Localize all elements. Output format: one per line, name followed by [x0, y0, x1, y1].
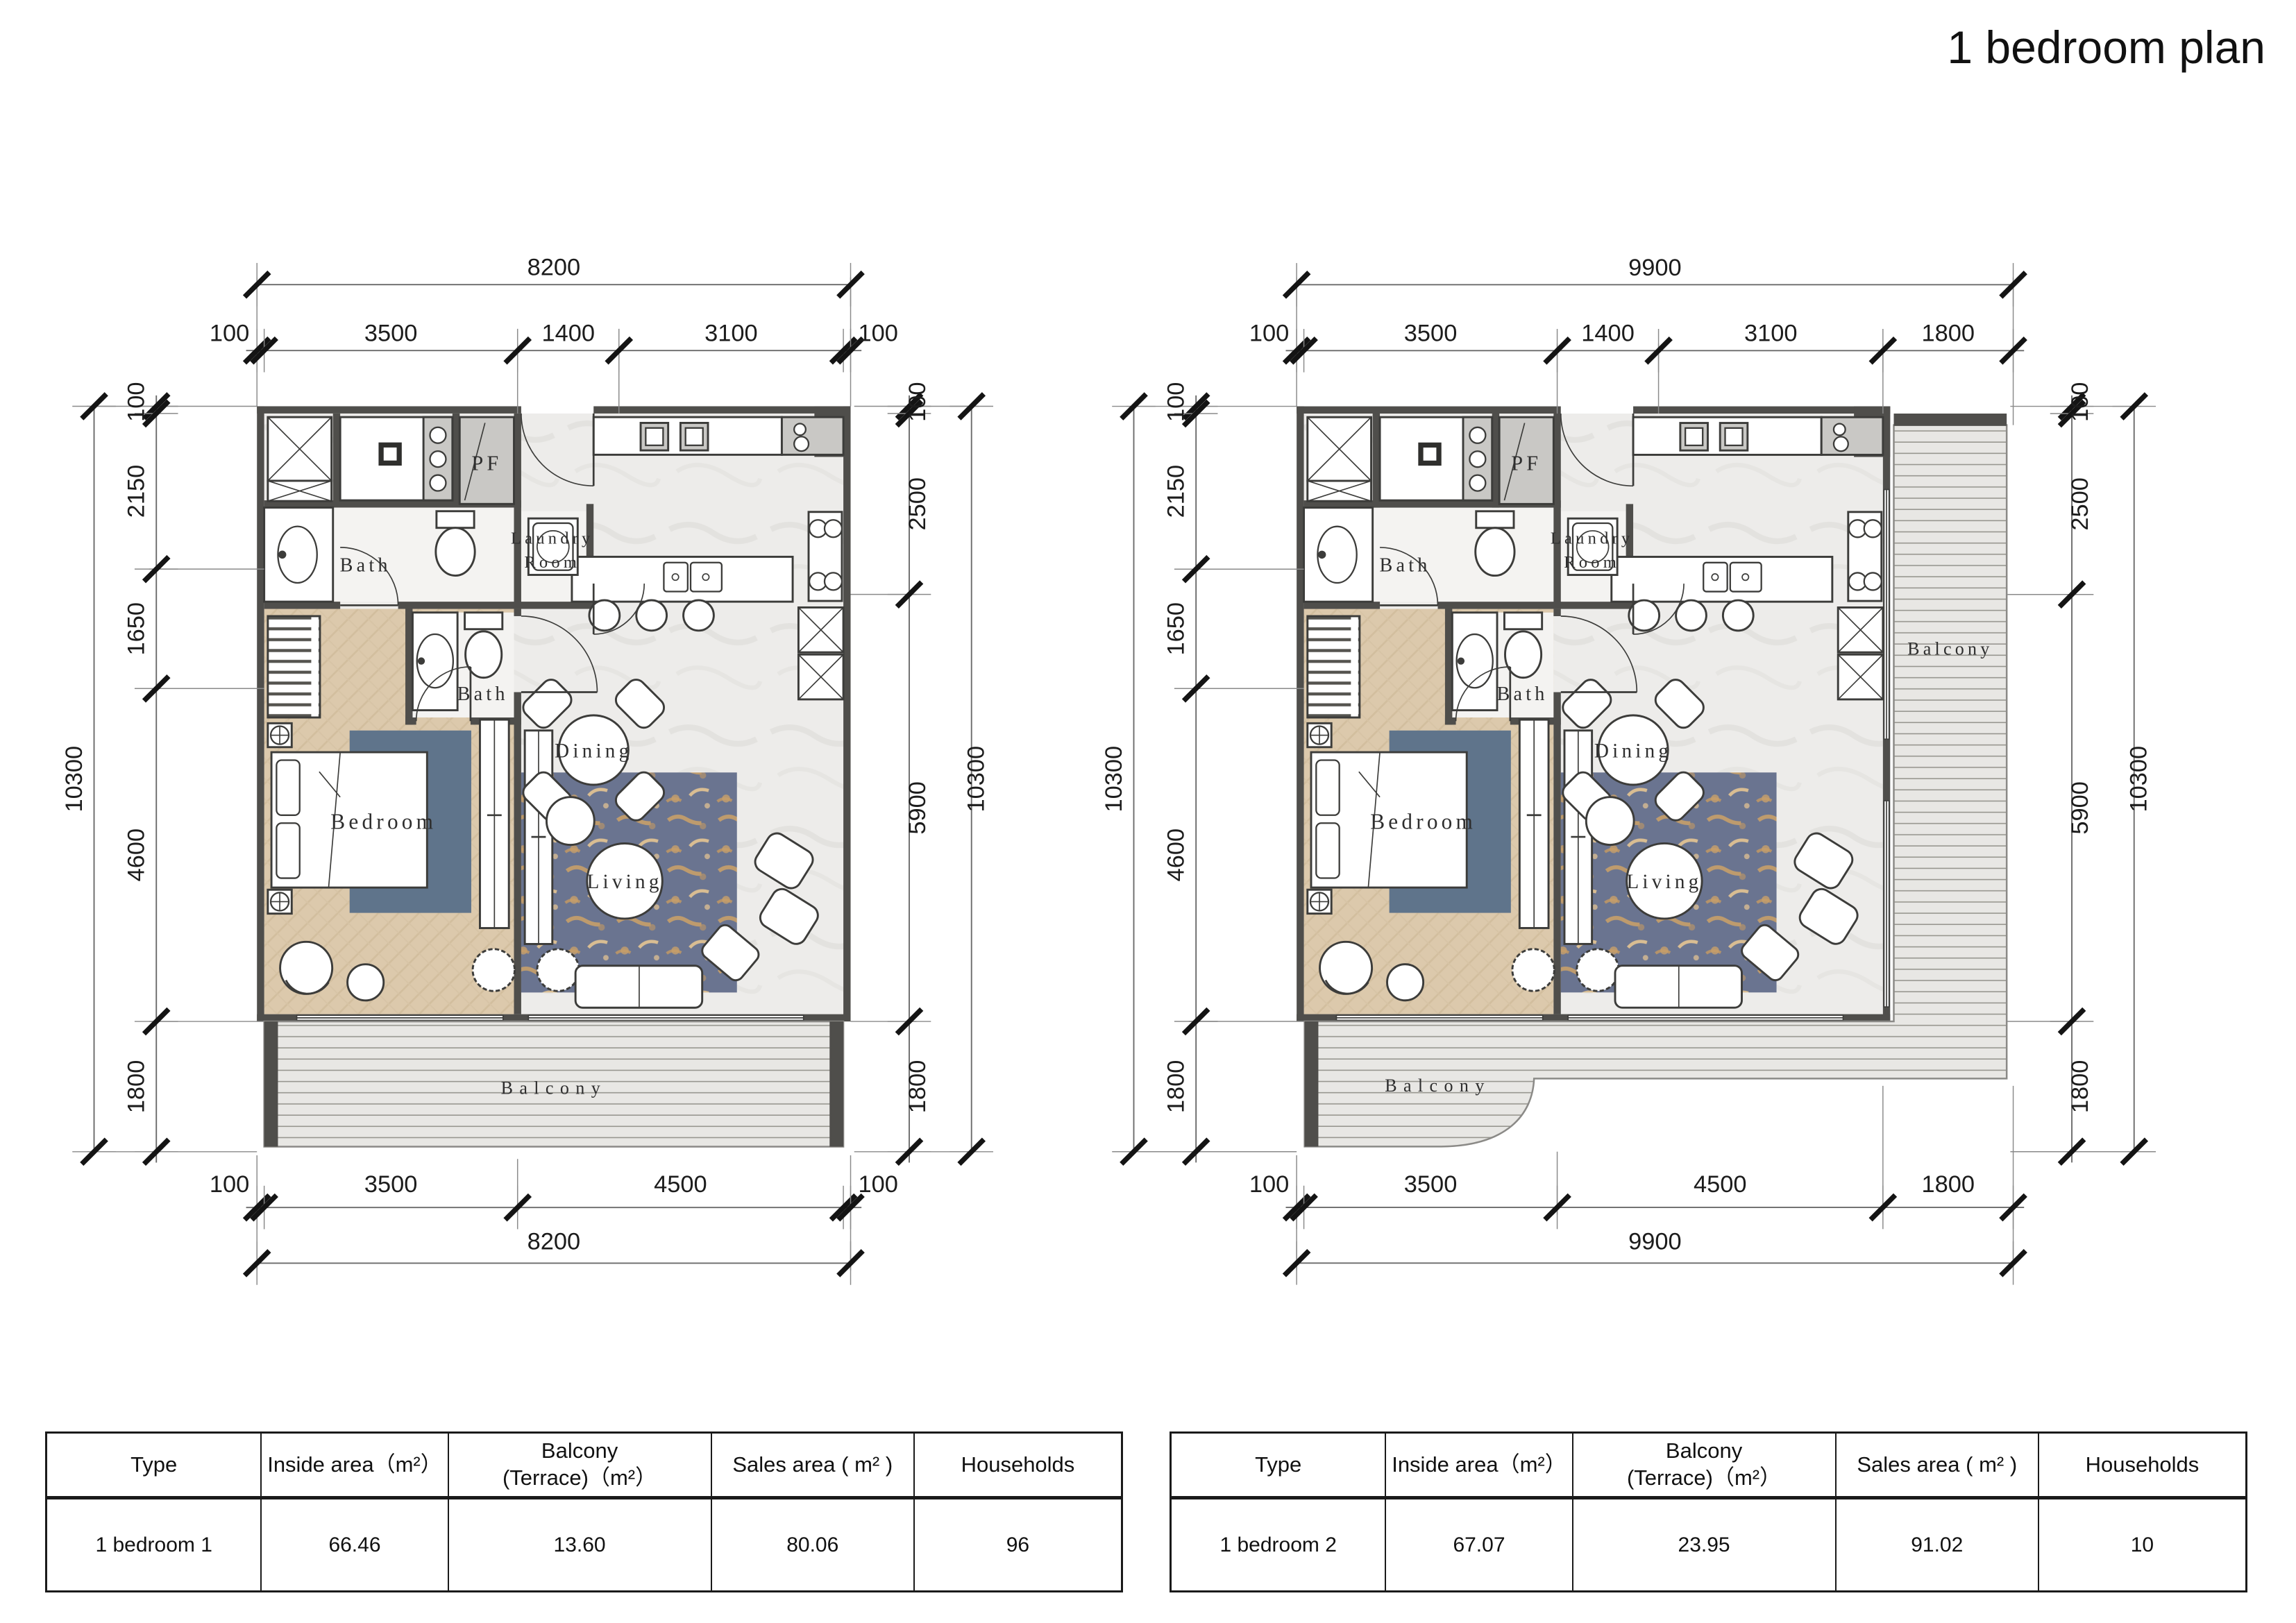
dim-top: 100 3500 1400 3100 100 8200 [210, 255, 898, 414]
dim-label: 100 [858, 1171, 897, 1198]
dim-right: 100 2500 5900 1800 10300 [2007, 382, 2156, 1164]
room-label-balcony: Balcony [501, 1078, 607, 1098]
dim-label: 2500 [2067, 477, 2093, 531]
dim-label: 10300 [1101, 746, 1127, 813]
col-header-households: Households [915, 1434, 1121, 1496]
dim-label: 1800 [2067, 1060, 2093, 1114]
room-label-balcony-side: Balcony [1907, 638, 1993, 658]
dim-label: 8200 [527, 255, 581, 281]
dim-label: 100 [858, 321, 897, 347]
spec-table-2: Type Inside area（m²） Balcony(Terrace)（m²… [1170, 1431, 2247, 1592]
dim-label: 1400 [541, 321, 595, 347]
room-label-bedroom: Bedroom [330, 810, 437, 834]
room-label-laundry: Laundry [511, 529, 594, 548]
dim-label: 100 [2067, 382, 2093, 422]
dim-label: 1800 [123, 1060, 149, 1114]
plan-left-drawing: Bath Laundry Room PF Bath Bedroom Dining… [69, 247, 1010, 1289]
dim-label: 4600 [123, 829, 149, 882]
dim-label: 4600 [1163, 829, 1189, 882]
cell-sales-area: 91.02 [1837, 1499, 2039, 1590]
floor-plan-sheet: 1 bedroom plan [0, 0, 2296, 1623]
room-label-bedroom: Bedroom [1370, 810, 1476, 834]
cell-type: 1 bedroom 2 [1172, 1499, 1386, 1590]
col-header-inside-area: Inside area（m²） [262, 1434, 448, 1496]
dim-label: 100 [1249, 1171, 1289, 1198]
dim-label: 3500 [364, 321, 418, 347]
spec-table-1: Type Inside area（m²） Balcony(Terrace)（m²… [45, 1431, 1123, 1592]
dim-bottom: 100 3500 4500 100 8200 [210, 1155, 898, 1285]
cell-sales-area: 80.06 [712, 1499, 915, 1590]
dim-label: 10300 [963, 746, 989, 813]
room-label-pf: PF [471, 451, 502, 475]
cell-inside-area: 66.46 [262, 1499, 448, 1590]
dim-top: 100 3500 1400 3100 1800 9900 [1249, 255, 2025, 425]
room-label-bath-upper: Bath [1380, 554, 1431, 576]
dim-label: 5900 [904, 781, 931, 835]
dim-label: 3500 [1404, 321, 1458, 347]
room-label-laundry: Laundry [1551, 529, 1634, 548]
col-header-type: Type [1172, 1434, 1386, 1496]
page-title: 1 bedroom plan [1947, 21, 2265, 74]
cell-balcony-area: 23.95 [1573, 1499, 1837, 1590]
room-label-pf: PF [1511, 451, 1542, 475]
dim-label: 5900 [2067, 781, 2093, 835]
room-label-bath-lower: Bath [457, 683, 509, 705]
col-header-balcony: Balcony(Terrace)（m²） [449, 1434, 712, 1496]
dim-label: 3100 [1744, 321, 1798, 347]
dim-label: 1400 [1581, 321, 1635, 347]
col-header-inside-area: Inside area（m²） [1386, 1434, 1573, 1496]
cell-inside-area: 67.07 [1386, 1499, 1573, 1590]
dim-label: 100 [1249, 321, 1289, 347]
dim-label: 9900 [1628, 1228, 1682, 1255]
cell-balcony-area: 13.60 [449, 1499, 712, 1590]
plan-right-drawing: Bath Laundry Room PF Bath Bedroom Dining… [1108, 247, 2172, 1289]
dim-label: 1800 [1921, 1171, 1975, 1198]
dim-label: 100 [210, 321, 249, 347]
col-header-households: Households [2039, 1434, 2245, 1496]
col-header-type: Type [47, 1434, 262, 1496]
dim-label: 3100 [704, 321, 758, 347]
dim-label: 2150 [123, 465, 149, 518]
room-label-laundry: Room [524, 553, 580, 572]
table-row: 1 bedroom 2 67.07 23.95 91.02 10 [1172, 1499, 2245, 1590]
room-label-living: Living [587, 871, 663, 893]
dim-right: 100 2500 5900 1800 10300 [851, 382, 993, 1164]
dim-label: 100 [210, 1171, 249, 1198]
cell-households: 10 [2039, 1499, 2245, 1590]
dim-label: 3500 [1404, 1171, 1458, 1198]
table-header-row: Type Inside area（m²） Balcony(Terrace)（m²… [47, 1434, 1121, 1499]
cell-type: 1 bedroom 1 [47, 1499, 262, 1590]
dim-left: 100 2150 1650 4600 1800 10300 [1101, 382, 1304, 1164]
dim-label: 4500 [1694, 1171, 1747, 1198]
dim-left: 100 2150 1650 4600 1800 10300 [61, 382, 264, 1164]
room-label-balcony: Balcony [1385, 1076, 1491, 1096]
dim-label: 100 [123, 382, 149, 422]
dim-label: 2500 [904, 477, 931, 531]
cell-households: 96 [915, 1499, 1121, 1590]
dim-label: 4500 [654, 1171, 707, 1198]
dim-label: 100 [1163, 382, 1189, 422]
dim-label: 2150 [1163, 465, 1189, 518]
col-header-sales-area: Sales area ( m² ) [712, 1434, 915, 1496]
room-label-laundry: Room [1564, 553, 1620, 572]
room-label-dining: Dining [1594, 740, 1672, 762]
dim-label: 10300 [61, 746, 87, 813]
dim-label: 1800 [1163, 1060, 1189, 1114]
table-row: 1 bedroom 1 66.46 13.60 80.06 96 [47, 1499, 1121, 1590]
room-label-bath-lower: Bath [1497, 683, 1548, 705]
dim-label: 1650 [1163, 602, 1189, 656]
dim-label: 100 [904, 382, 931, 422]
dim-label: 9900 [1628, 255, 1682, 281]
dim-label: 8200 [527, 1229, 581, 1255]
dim-label: 1650 [123, 602, 149, 656]
dim-label: 10300 [2125, 746, 2152, 813]
dim-label: 1800 [1921, 321, 1975, 347]
dim-label: 3500 [364, 1171, 418, 1198]
room-label-bath-upper: Bath [340, 554, 391, 576]
col-header-sales-area: Sales area ( m² ) [1837, 1434, 2039, 1496]
col-header-balcony: Balcony(Terrace)（m²） [1573, 1434, 1837, 1496]
room-label-dining: Dining [555, 740, 632, 762]
room-label-living: Living [1626, 871, 1702, 893]
dim-label: 1800 [904, 1060, 931, 1114]
table-header-row: Type Inside area（m²） Balcony(Terrace)（m²… [1172, 1434, 2245, 1499]
